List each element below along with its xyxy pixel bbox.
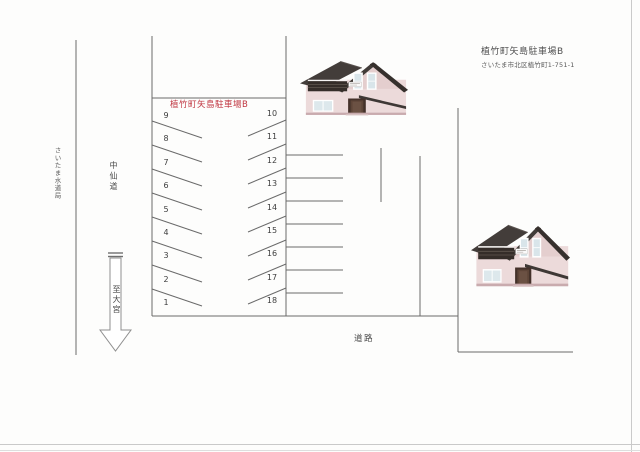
space-number-12: 12: [262, 155, 282, 167]
house-illustration-top: [300, 61, 408, 115]
house-illustration-right: [471, 225, 570, 287]
space-number-6: 6: [158, 180, 174, 192]
space-number-15: 15: [262, 225, 282, 237]
scan-edge-bottom2: [0, 450, 640, 451]
scan-edge-bottom: [0, 444, 640, 445]
space-number-14: 14: [262, 202, 282, 214]
street-label: 中仙道: [108, 161, 119, 193]
space-number-1: 1: [158, 297, 174, 309]
space-number-3: 3: [158, 250, 174, 262]
space-number-4: 4: [158, 227, 174, 239]
space-number-16: 16: [262, 248, 282, 260]
space-number-17: 17: [262, 272, 282, 284]
water-bureau-label: さいたま水道局: [52, 147, 62, 200]
space-number-7: 7: [158, 157, 174, 169]
parking-lot-title: 植竹町矢島駐車場B: [170, 98, 248, 110]
space-number-11: 11: [262, 131, 282, 143]
space-number-5: 5: [158, 204, 174, 216]
page-title: 植竹町矢島駐車場B: [481, 44, 564, 57]
space-number-13: 13: [262, 178, 282, 190]
to-omiya-label: 至大宮: [111, 285, 122, 315]
scanned-parking-map-page: 植竹町矢島駐車場B さいたま市北区植竹町1-751-1 植竹町矢島駐車場B さい…: [0, 0, 640, 452]
scan-edge-right: [631, 0, 632, 452]
space-number-10: 10: [262, 108, 282, 120]
space-number-8: 8: [158, 133, 174, 145]
space-number-2: 2: [158, 274, 174, 286]
page-address: さいたま市北区植竹町1-751-1: [481, 59, 575, 69]
space-number-18: 18: [262, 295, 282, 307]
road-label: 道路: [354, 332, 374, 344]
space-number-9: 9: [158, 110, 174, 122]
